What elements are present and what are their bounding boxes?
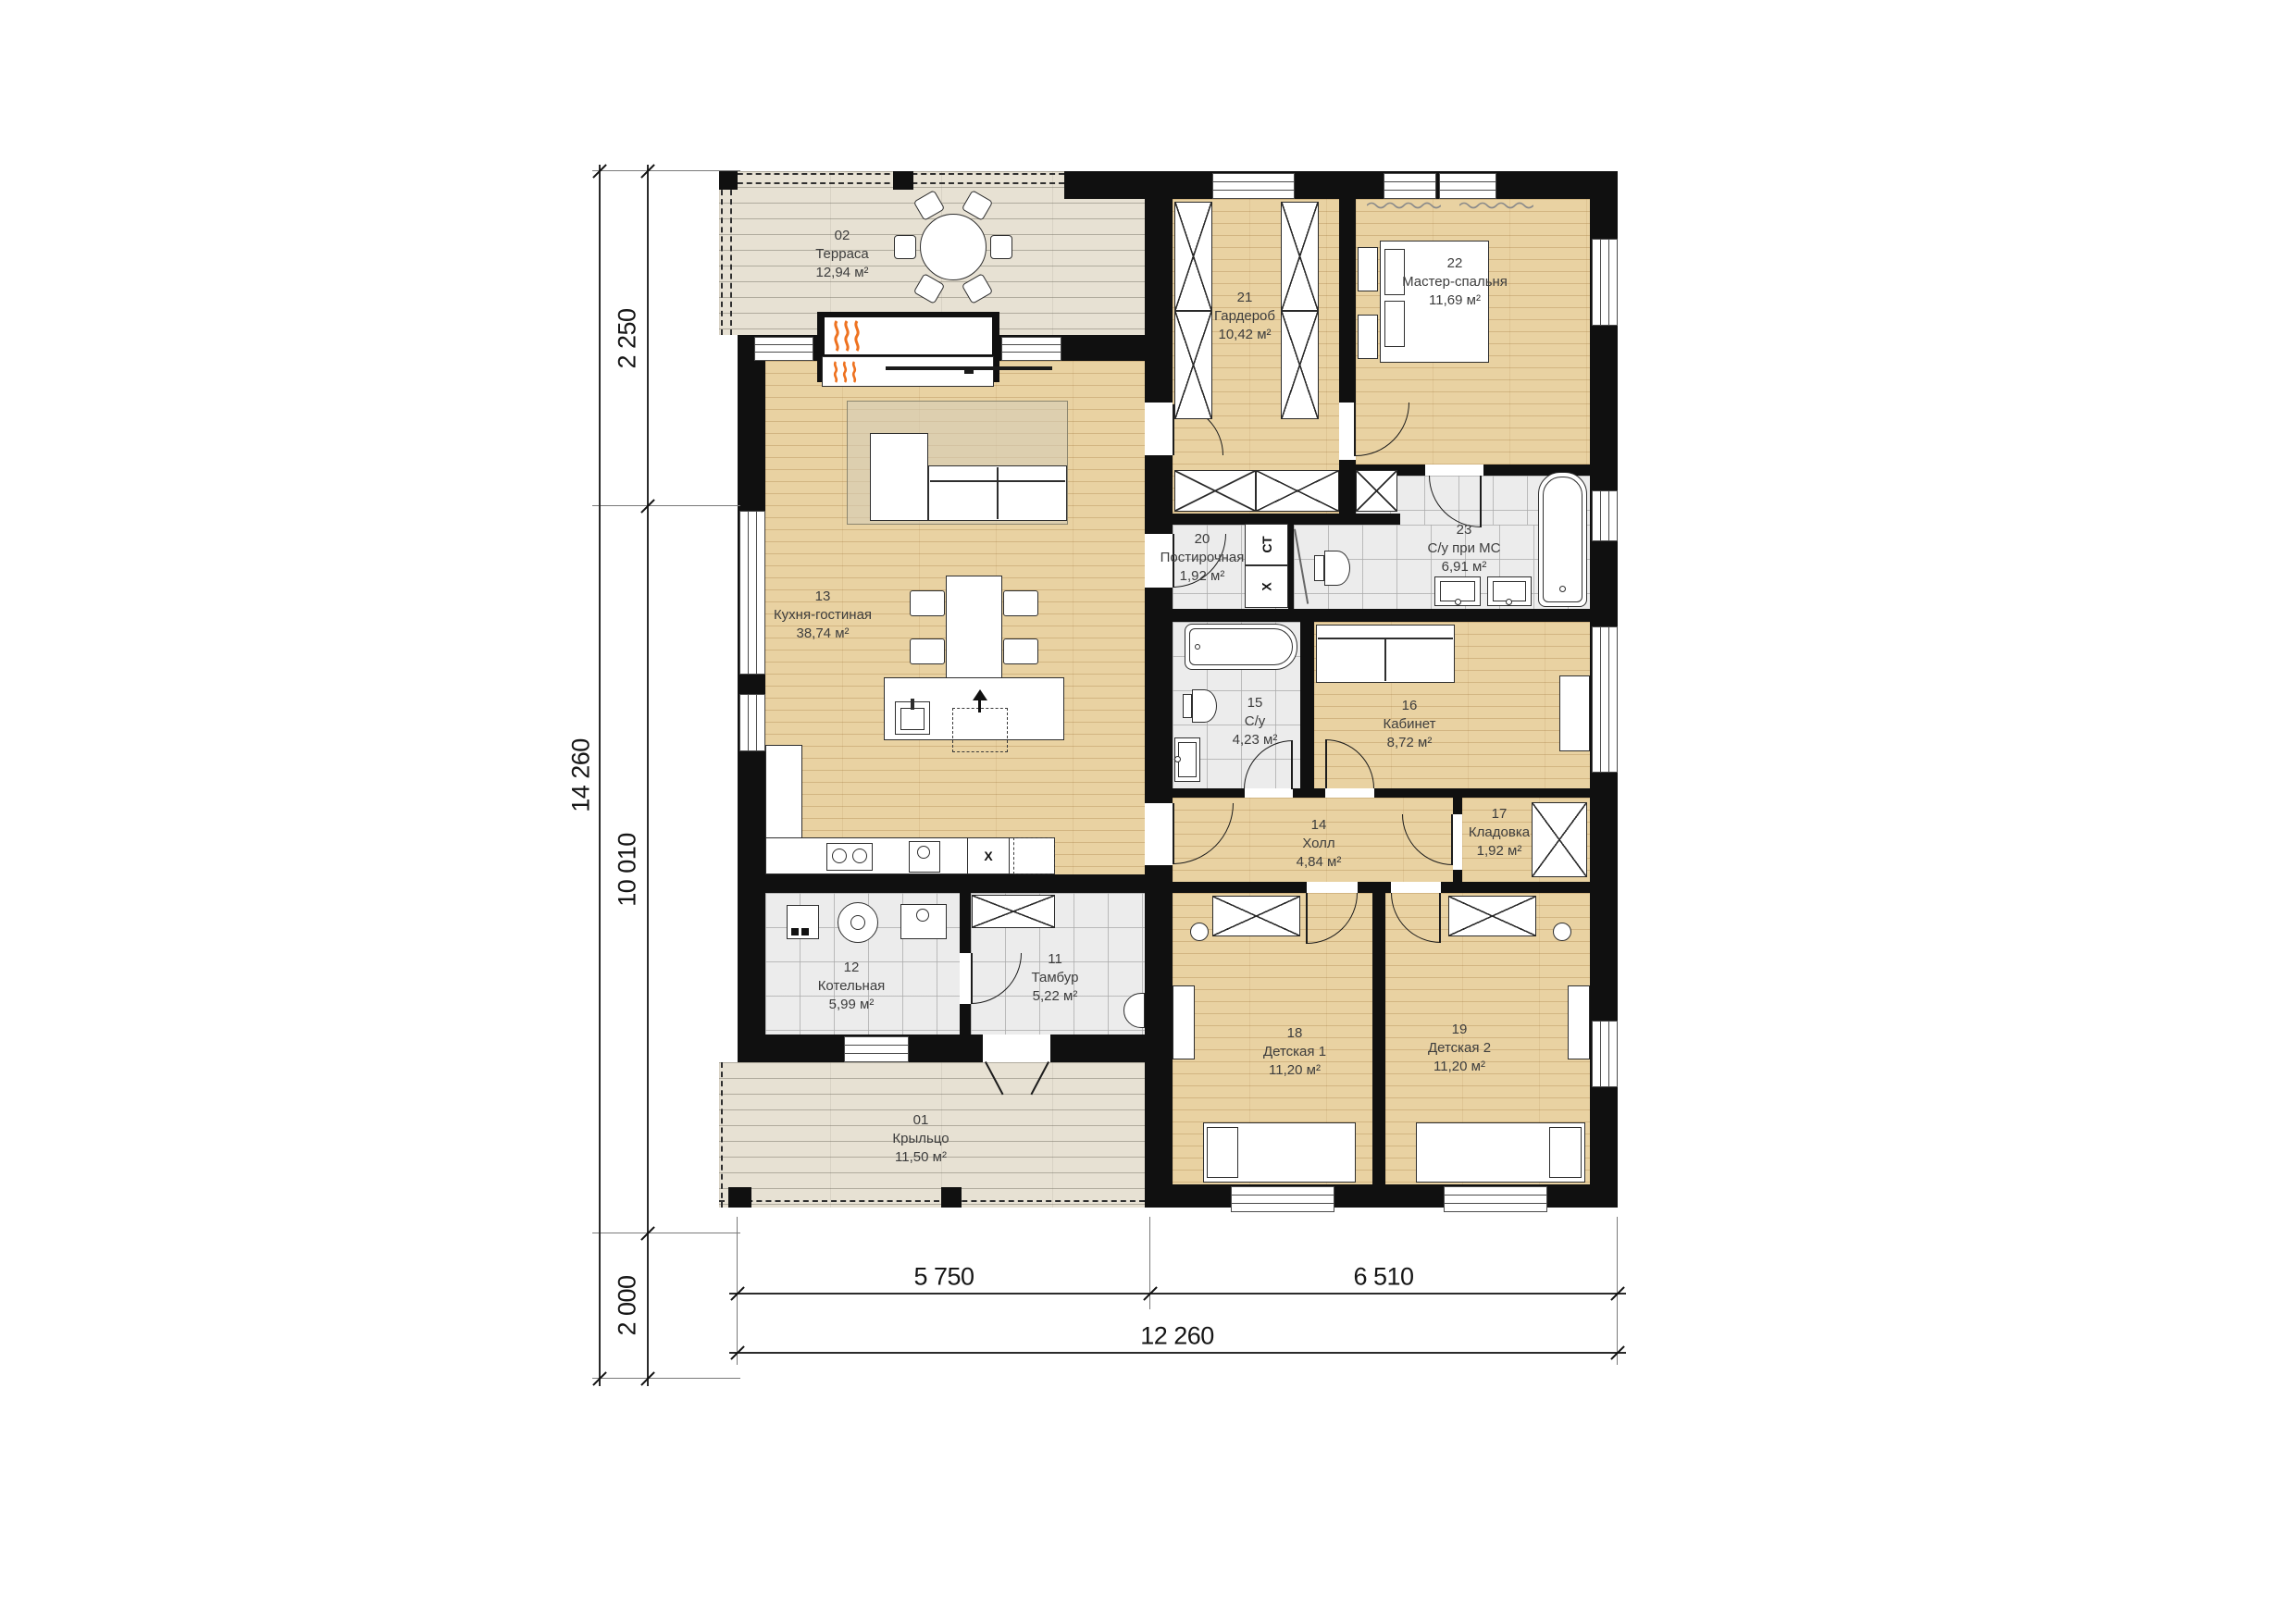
sofa-back-line xyxy=(930,480,1065,482)
dim-label-bottom-left: 5 750 xyxy=(913,1263,974,1292)
window-master-top-2 xyxy=(1439,173,1496,199)
terrace-chair-1 xyxy=(990,235,1012,259)
curtain-icon xyxy=(1367,201,1441,210)
cooktop-burner-2 xyxy=(852,849,867,863)
wardrobe-closet-row xyxy=(1256,470,1339,512)
toilet-tank xyxy=(1183,694,1192,718)
door-master-bath-leaf xyxy=(1480,476,1482,527)
wardrobe-closet-row xyxy=(1174,470,1256,512)
window-living-top-right xyxy=(1001,337,1061,361)
terrace-dash-top xyxy=(719,173,1064,175)
bathroom-tub-inner xyxy=(1189,628,1293,665)
window-kids2-bottom xyxy=(1444,1186,1547,1212)
dim-line-left-inner xyxy=(647,165,649,1386)
wall-kids-divider xyxy=(1372,893,1385,1184)
door-hall-storage-leaf xyxy=(1451,814,1453,865)
bathroom-tub-faucet xyxy=(1195,644,1200,650)
wall-laundry-partition xyxy=(1288,525,1294,609)
wall-under-hall xyxy=(1173,882,1590,893)
window-masterbath-right xyxy=(1592,490,1618,541)
storage-closet xyxy=(1532,802,1587,877)
dim-line-bottom-1 xyxy=(729,1293,1626,1295)
door-hall-bath-opening xyxy=(1245,788,1293,798)
door-living-wardrobe-opening xyxy=(1145,403,1173,455)
island-stool-zone xyxy=(952,708,1008,752)
dim-label-left-bottom: 2 000 xyxy=(614,1275,642,1335)
office-sofa-seam xyxy=(1384,639,1386,681)
wall-over-bath-office xyxy=(1173,609,1590,622)
kids2-closet xyxy=(1448,896,1536,936)
dining-chair-4 xyxy=(1003,638,1038,664)
room-label-porch: 01Крыльцо11,50 м² xyxy=(892,1111,949,1167)
door-living-hall-leaf xyxy=(1173,803,1174,864)
window-kids2-right xyxy=(1592,1021,1618,1087)
room-label-bathroom: 15С/у4,23 м² xyxy=(1233,694,1278,750)
terrace-dash-left2 xyxy=(730,171,732,335)
door-hall-kids2-opening xyxy=(1391,882,1441,893)
masterbath-tub-drain xyxy=(1559,586,1566,592)
island-sink-basin xyxy=(900,708,925,730)
dining-chair-1 xyxy=(910,590,945,616)
room-label-terrace: 02Терраса12,94 м² xyxy=(815,227,869,282)
masterbath-sink-faucet xyxy=(1455,599,1461,605)
terrace-dash-left xyxy=(721,171,723,335)
room-label-vestibule: 11Тамбур5,22 м² xyxy=(1032,950,1079,1006)
wall-wardrobe-master xyxy=(1339,199,1356,525)
tv-mount xyxy=(964,370,974,374)
terrace-dash-top2 xyxy=(719,182,1064,184)
kids1-chair xyxy=(1190,923,1209,941)
kids2-bed-pillow xyxy=(1549,1127,1582,1178)
door-hall-storage-opening xyxy=(1453,814,1462,870)
room-label-office: 16Кабинет8,72 м² xyxy=(1383,697,1435,752)
floor-plan: X СТ X xyxy=(719,171,1618,1208)
room-label-kids2: 19Детская 211,20 м² xyxy=(1428,1021,1491,1076)
door-hall-bath-leaf xyxy=(1291,740,1293,789)
porch-dash-left xyxy=(721,1062,723,1208)
fridge-label: X xyxy=(967,837,1010,874)
window-office-right xyxy=(1592,626,1618,773)
window-wardrobe-top xyxy=(1212,173,1295,199)
window-boiler-bottom xyxy=(844,1036,909,1062)
wall-over-hall xyxy=(1173,788,1590,798)
island-sink-faucet xyxy=(911,699,914,710)
entry-door-opening xyxy=(983,1035,1050,1062)
wall-bath-office xyxy=(1300,622,1314,798)
dim-label-bottom-total: 12 260 xyxy=(1140,1322,1214,1351)
kids2-chair xyxy=(1553,923,1571,941)
dim-label-bottom-right: 6 510 xyxy=(1353,1263,1413,1292)
dishwasher-zone xyxy=(1013,837,1055,874)
wardrobe-closet xyxy=(1281,311,1319,419)
water-heater-dial xyxy=(916,909,929,922)
window-master-top-1 xyxy=(1384,173,1436,199)
door-hall-office-leaf xyxy=(1325,739,1327,788)
entrance-arrow-stem xyxy=(978,700,981,712)
room-label-wardrobe: 21Гардероб10,42 м² xyxy=(1214,289,1275,344)
wall-under-living xyxy=(738,874,1173,893)
window-living-left-2 xyxy=(739,694,765,751)
room-label-storage: 17Кладовка1,92 м² xyxy=(1469,805,1530,861)
window-master-right xyxy=(1592,239,1618,326)
room-label-kids1: 18Детская 111,20 м² xyxy=(1263,1024,1326,1080)
flame-icon xyxy=(830,360,862,384)
dining-chair-3 xyxy=(1003,590,1038,616)
window-living-top-left xyxy=(754,337,813,361)
kids1-desk xyxy=(1173,985,1195,1059)
dim-label-left-top: 2 250 xyxy=(614,308,642,368)
toilet-tank xyxy=(1314,555,1324,581)
masterbath-tub-inner xyxy=(1543,477,1582,602)
dim-label-left-mid: 10 010 xyxy=(614,833,642,907)
office-desk xyxy=(1559,675,1590,751)
cooktop-burner-1 xyxy=(832,849,847,863)
room-label-master: 22Мастер-спальня11,69 м² xyxy=(1402,254,1508,310)
room-label-boiler: 12Котельная5,99 м² xyxy=(818,959,886,1014)
masterbath-closet xyxy=(1356,470,1397,512)
wall-bottom-left xyxy=(738,1035,1145,1062)
wall-central xyxy=(1145,171,1173,1208)
window-kids1-bottom xyxy=(1231,1186,1334,1212)
terrace-post-mid xyxy=(893,171,913,190)
door-hall-office-opening xyxy=(1325,788,1374,798)
kids1-closet xyxy=(1212,896,1300,936)
door-boiler-vestibule-opening xyxy=(960,953,971,1004)
nightstand xyxy=(1358,315,1378,359)
room-label-laundry: 20Постирочная1,92 м² xyxy=(1160,530,1245,586)
door-master-bath-opening xyxy=(1425,465,1483,476)
wardrobe-closet xyxy=(1174,202,1212,311)
wardrobe-closet xyxy=(1281,202,1319,311)
wardrobe-closet xyxy=(1174,311,1212,419)
window-living-left-1 xyxy=(739,511,765,675)
boiler-unit-detail xyxy=(791,928,799,935)
bathroom-sink-basin xyxy=(1178,742,1197,777)
room-label-masterbath: 23С/у при МС6,91 м² xyxy=(1427,521,1500,576)
counter-sink-drain xyxy=(917,846,930,859)
washing-machine-label: СТ xyxy=(1246,523,1287,566)
curtain-icon xyxy=(1459,201,1533,210)
terrace-chair-4 xyxy=(894,235,916,259)
boiler-tank-core xyxy=(850,915,865,930)
flame-icon xyxy=(830,319,865,353)
sofa-seam xyxy=(997,467,999,519)
toilet-bowl xyxy=(1192,689,1217,723)
door-hall-kids1-leaf xyxy=(1306,893,1308,944)
terrace-dining-table xyxy=(920,214,987,280)
door-wardrobe-master-leaf xyxy=(1354,403,1356,456)
dining-table xyxy=(946,576,1002,685)
porch-dash-bottom xyxy=(719,1200,1145,1202)
nightstand xyxy=(1358,247,1378,291)
door-hall-kids2-leaf xyxy=(1439,893,1441,943)
dryer-machine-label: X xyxy=(1246,565,1288,609)
dim-label-left-total: 14 260 xyxy=(567,738,596,812)
porch-post-mid xyxy=(941,1187,962,1208)
porch-post-left xyxy=(728,1187,751,1208)
door-boiler-vestibule-leaf xyxy=(971,953,973,1004)
floor-plan-canvas: X СТ X xyxy=(0,0,2296,1623)
door-living-hall-opening xyxy=(1145,803,1173,865)
ext-line xyxy=(592,1378,740,1379)
dim-line-bottom-2 xyxy=(729,1352,1626,1354)
masterbath-sink-faucet xyxy=(1506,599,1512,605)
vestibule-closet xyxy=(972,895,1055,928)
wall-terrace-connector xyxy=(1064,171,1145,199)
kids1-bed-pillow xyxy=(1207,1127,1238,1178)
dim-line-left-outer xyxy=(599,165,601,1386)
boiler-unit-detail2 xyxy=(801,928,809,935)
toilet-bowl xyxy=(1324,551,1350,586)
sofa-chaise xyxy=(870,433,928,521)
terrace-post-left xyxy=(719,171,738,190)
kids2-desk xyxy=(1568,985,1590,1059)
ext-line xyxy=(592,1233,740,1233)
room-label-living: 13Кухня-гостиная38,74 м² xyxy=(774,588,872,643)
dining-chair-2 xyxy=(910,638,945,664)
ext-line xyxy=(592,170,740,171)
ext-line xyxy=(592,505,740,506)
bathroom-sink-faucet xyxy=(1174,756,1181,762)
door-hall-kids1-opening xyxy=(1307,882,1358,893)
room-label-hall: 14Холл4,84 м² xyxy=(1297,816,1342,872)
